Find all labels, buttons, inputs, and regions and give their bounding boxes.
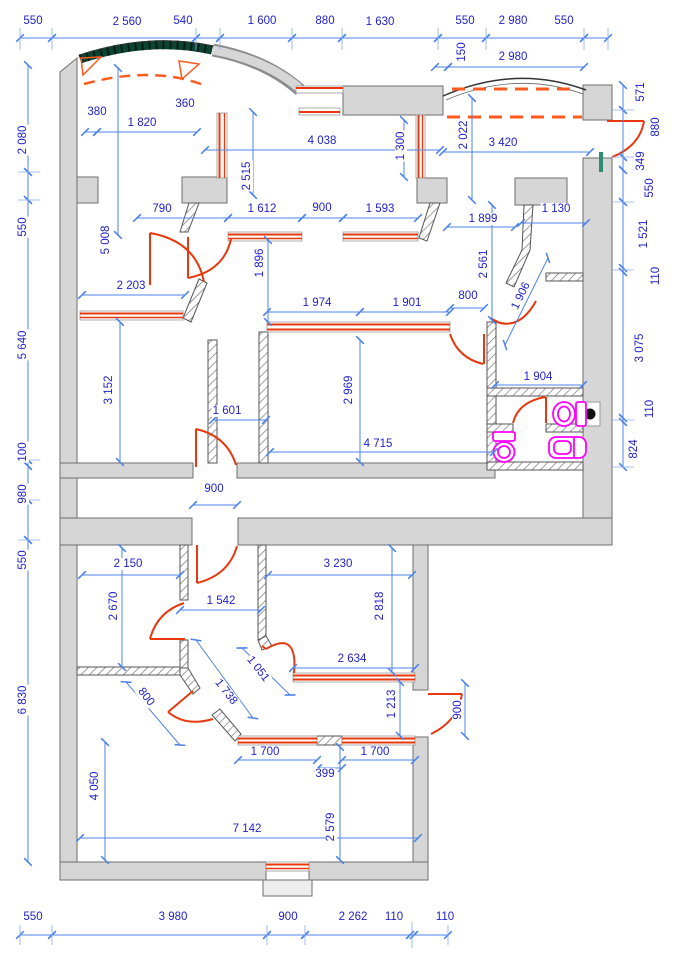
door-arc	[168, 691, 213, 722]
entrance-porch	[263, 880, 312, 896]
outer-wall-bottom	[60, 862, 266, 880]
dim-label: 1 974	[302, 297, 333, 309]
partition-wall-slanted	[506, 205, 533, 287]
floor-plan-canvas: 550 2 560 540 1 600 880 1 630 550 2 980 …	[0, 0, 676, 954]
dim-label: 1 300	[395, 131, 407, 162]
dim-label: 550	[17, 549, 29, 570]
dim-label: 1 130	[541, 203, 572, 215]
dim-label: 1 901	[392, 297, 423, 309]
floor-plan-drawing	[0, 0, 676, 954]
dim-label: 2 560	[112, 16, 143, 28]
dim-label: 2 561	[478, 249, 490, 280]
dim-label: 1 820	[127, 117, 158, 129]
dim-label: 550	[644, 177, 656, 198]
dim-label: 380	[86, 106, 107, 118]
door-arc	[197, 545, 237, 583]
bathroom-wall	[487, 424, 513, 432]
dim-label: 360	[174, 98, 195, 110]
door-arc	[513, 397, 546, 423]
dim-label: 550	[22, 15, 43, 27]
dim-label: 3 980	[158, 911, 189, 923]
dim-label: 824	[628, 438, 640, 459]
window	[416, 115, 425, 178]
door-arc	[150, 233, 204, 285]
outer-wall-bottom	[309, 862, 428, 880]
dim-label: 110	[384, 911, 404, 923]
dim-label: 550	[553, 15, 574, 27]
dim-label: 110	[644, 399, 656, 419]
dim-label: 800	[457, 290, 478, 302]
dim-label: 100	[17, 441, 29, 462]
dim-label: 550	[17, 216, 29, 237]
dim-label: 540	[172, 15, 193, 27]
dim-label: 1 521	[638, 219, 650, 250]
dim-label: 2 980	[498, 51, 529, 63]
dim-label: 2 634	[337, 653, 368, 665]
outer-wall-lower-right	[413, 545, 428, 690]
door-arc	[450, 334, 484, 364]
wall-pier	[182, 177, 227, 203]
dim-label: 2 150	[113, 558, 144, 570]
door-arc	[150, 603, 185, 639]
wall-pier	[515, 178, 567, 205]
outer-wall-right	[583, 158, 612, 545]
dim-label: 2 670	[108, 591, 120, 622]
window	[80, 311, 183, 320]
wall-pier	[417, 178, 447, 203]
sink-icon	[549, 437, 586, 458]
corridor-wall-lower	[238, 518, 612, 545]
dim-label: 550	[22, 911, 43, 923]
dim-label: 3 420	[488, 137, 519, 149]
window	[217, 113, 227, 178]
window	[238, 736, 317, 745]
window	[228, 232, 302, 241]
partition-wall-slanted	[212, 709, 241, 741]
bathroom-wall	[487, 462, 583, 470]
dim-label: 2 262	[338, 911, 369, 923]
bathroom-wall	[487, 388, 583, 396]
dim-label: 1 542	[206, 595, 237, 607]
dim-label: 900	[452, 699, 464, 720]
dim-label: 2 515	[241, 161, 253, 192]
dim-label: 900	[311, 202, 332, 214]
corridor-wall-upper	[237, 463, 495, 478]
dim-label: 2 969	[343, 375, 355, 406]
partition-wall	[180, 545, 188, 600]
dim-label: 2 579	[325, 812, 337, 843]
partition-stub	[546, 273, 583, 281]
dim-label: 110	[650, 266, 662, 286]
door-arc	[262, 643, 294, 673]
top-wall	[343, 86, 443, 115]
dim-label: 150	[456, 41, 468, 62]
partition-wall	[258, 545, 266, 640]
corridor-wall-upper	[60, 463, 193, 478]
dim-label: 1 904	[523, 371, 554, 383]
dimension-lines-layer	[20, 38, 623, 935]
dim-label: 1 600	[247, 15, 278, 27]
dim-label: 349	[635, 150, 647, 171]
dim-label: 5 640	[17, 330, 29, 361]
dim-label: 1 700	[360, 746, 391, 758]
dim-label: 1 899	[468, 213, 499, 225]
dim-label: 3 230	[323, 558, 354, 570]
dim-label: 980	[17, 483, 29, 504]
dim-label: 1 896	[254, 248, 266, 279]
window-pier	[317, 736, 342, 745]
dim-label: 399	[314, 768, 335, 780]
dim-label: 900	[277, 911, 298, 923]
dim-label: 1 630	[365, 16, 396, 28]
balcony-door-wedge	[179, 61, 199, 79]
dim-label: 1 601	[212, 405, 243, 417]
dashed-opening-line	[84, 75, 201, 84]
dim-label: 1 700	[250, 746, 281, 758]
dim-label: 3 152	[103, 375, 115, 406]
dim-label: 880	[650, 116, 662, 137]
dim-label: 7 142	[232, 823, 263, 835]
wall-pier	[77, 177, 98, 203]
window	[342, 736, 415, 745]
dim-label: 550	[454, 15, 475, 27]
dim-label: 4 038	[307, 135, 338, 147]
dim-label: 1 593	[365, 203, 396, 215]
glass-panel	[599, 152, 603, 172]
dim-label: 6 830	[17, 685, 29, 716]
toilet-icon	[553, 402, 586, 426]
dim-label: 2 080	[17, 125, 29, 156]
partition-wall	[77, 667, 180, 675]
dim-label: 4 715	[363, 438, 394, 450]
partition-wall	[180, 640, 188, 670]
dim-label: 2 203	[116, 280, 147, 292]
dim-label: 3 075	[634, 333, 646, 364]
extension-lines	[18, 28, 634, 948]
window	[296, 86, 343, 93]
window	[293, 673, 415, 682]
dim-label: 4 050	[89, 771, 101, 802]
toilet-icon	[493, 432, 515, 462]
dim-label: 110	[435, 911, 455, 923]
entrance-threshold	[266, 862, 309, 871]
dim-label: 900	[203, 483, 224, 495]
dim-label: 790	[151, 203, 172, 215]
partition-wall-slanted	[183, 279, 207, 322]
dim-label: 880	[314, 15, 335, 27]
partition-wall-slanted	[419, 203, 440, 241]
dim-label: 5 008	[100, 225, 112, 256]
dim-label: 2 818	[374, 591, 386, 622]
dim-label: 2 980	[498, 15, 529, 27]
terrace-end-wall	[583, 85, 612, 120]
dim-label: 2 022	[458, 120, 470, 151]
terrace-railing	[446, 83, 583, 100]
dim-label: 571	[635, 81, 647, 102]
partition-corner	[180, 668, 200, 694]
dim-label: 1 213	[386, 689, 398, 720]
dim-label: 1 612	[247, 203, 278, 215]
window	[299, 108, 340, 115]
partition-wall	[208, 340, 217, 463]
partition-wall	[259, 332, 268, 463]
outer-wall-lower-right	[413, 737, 428, 880]
window	[267, 322, 450, 332]
corridor-wall-lower	[60, 518, 192, 545]
walls-layer	[60, 58, 612, 896]
window	[343, 232, 418, 241]
